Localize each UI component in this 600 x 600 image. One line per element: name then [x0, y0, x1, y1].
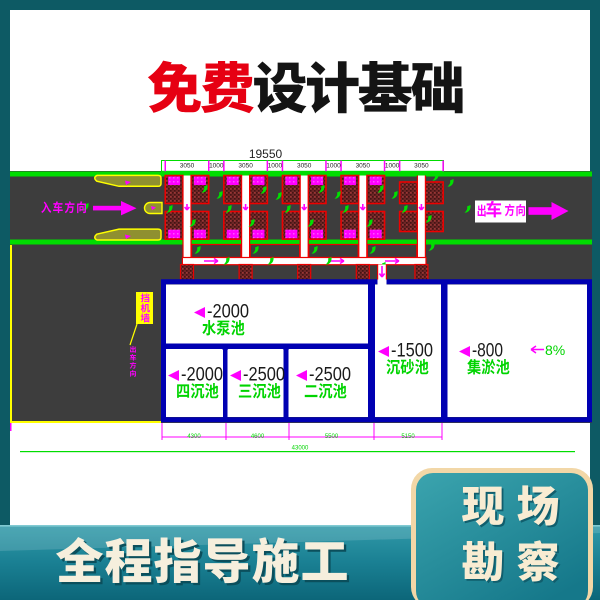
svg-text:-2500: -2500: [243, 365, 285, 386]
svg-text:-2000: -2000: [181, 365, 223, 386]
svg-text:-800: -800: [472, 341, 503, 362]
svg-text:3050: 3050: [356, 162, 371, 169]
svg-text:5500: 5500: [325, 434, 339, 440]
svg-text:3050: 3050: [414, 162, 429, 169]
svg-text:4600: 4600: [251, 434, 265, 440]
svg-text:1000: 1000: [268, 162, 283, 169]
svg-text:1000: 1000: [209, 162, 224, 169]
svg-text:4300: 4300: [187, 434, 201, 440]
svg-text:5150: 5150: [401, 434, 415, 440]
svg-text:1000: 1000: [326, 162, 341, 169]
svg-text:3050: 3050: [238, 162, 253, 169]
svg-text:-2500: -2500: [309, 365, 351, 386]
svg-text:3050: 3050: [297, 162, 312, 169]
svg-text:43000: 43000: [292, 446, 309, 452]
svg-text:8%: 8%: [545, 342, 565, 358]
svg-text:-1500: -1500: [391, 341, 433, 362]
svg-text:3050: 3050: [180, 162, 195, 169]
svg-text:-2000: -2000: [207, 302, 249, 323]
svg-text:1000: 1000: [385, 162, 400, 169]
svg-text:19550: 19550: [249, 147, 283, 161]
